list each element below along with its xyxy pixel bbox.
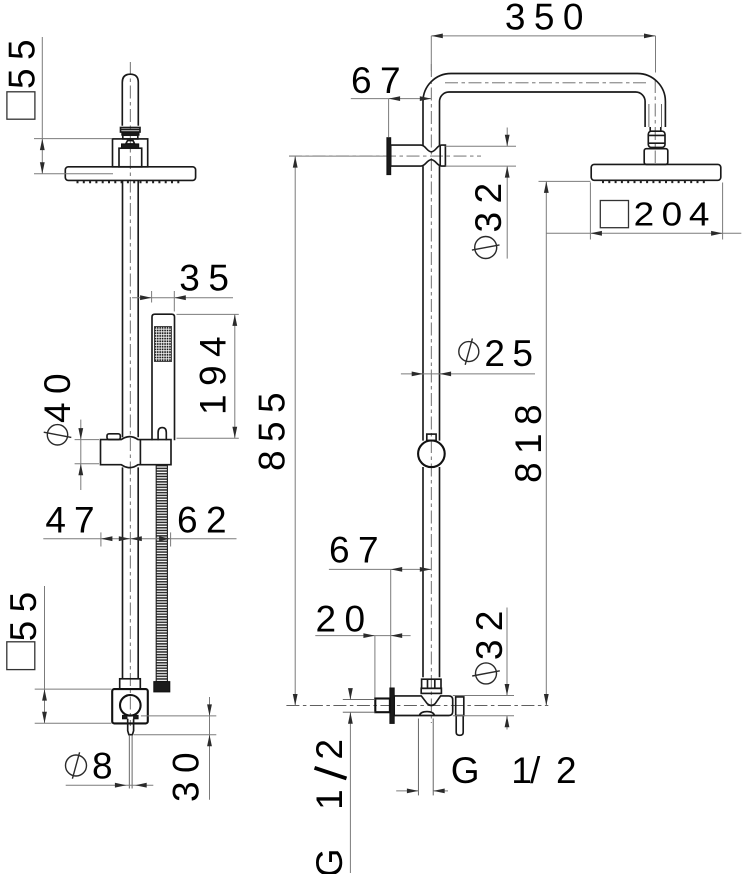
svg-text:2: 2 — [316, 598, 345, 639]
svg-text:55: 55 — [2, 31, 43, 89]
svg-text:0: 0 — [563, 0, 592, 38]
svg-text:4: 4 — [45, 500, 74, 541]
svg-text:3: 3 — [179, 257, 208, 298]
svg-text:7: 7 — [74, 500, 103, 541]
svg-text:7: 7 — [358, 529, 387, 570]
svg-text:1: 1 — [309, 781, 350, 810]
svg-text:6: 6 — [351, 60, 380, 101]
svg-text:194: 194 — [193, 328, 234, 415]
svg-text:2: 2 — [634, 196, 655, 233]
svg-text:/: / — [530, 750, 549, 791]
svg-text:5: 5 — [534, 0, 563, 38]
svg-text:40: 40 — [37, 365, 78, 423]
svg-text:2: 2 — [556, 750, 585, 791]
svg-text:3: 3 — [505, 0, 534, 38]
svg-text:5: 5 — [512, 333, 541, 374]
svg-text:8: 8 — [92, 745, 121, 786]
svg-text:32: 32 — [468, 175, 509, 233]
svg-text:0: 0 — [345, 598, 374, 639]
svg-text:818: 818 — [508, 396, 549, 483]
svg-text:2: 2 — [309, 731, 350, 760]
svg-text:5: 5 — [208, 257, 237, 298]
svg-text:6: 6 — [177, 500, 206, 541]
svg-text:30: 30 — [166, 744, 207, 802]
svg-text:0: 0 — [662, 196, 683, 233]
svg-text:2: 2 — [206, 500, 235, 541]
svg-text:55: 55 — [3, 583, 44, 641]
svg-text:7: 7 — [380, 60, 409, 101]
svg-text:855: 855 — [252, 384, 293, 471]
svg-text:2: 2 — [484, 333, 513, 374]
svg-text:G: G — [309, 840, 350, 874]
svg-text:32: 32 — [469, 602, 510, 660]
svg-text:4: 4 — [689, 196, 710, 233]
svg-text:6: 6 — [329, 529, 358, 570]
svg-text:G: G — [451, 750, 488, 791]
